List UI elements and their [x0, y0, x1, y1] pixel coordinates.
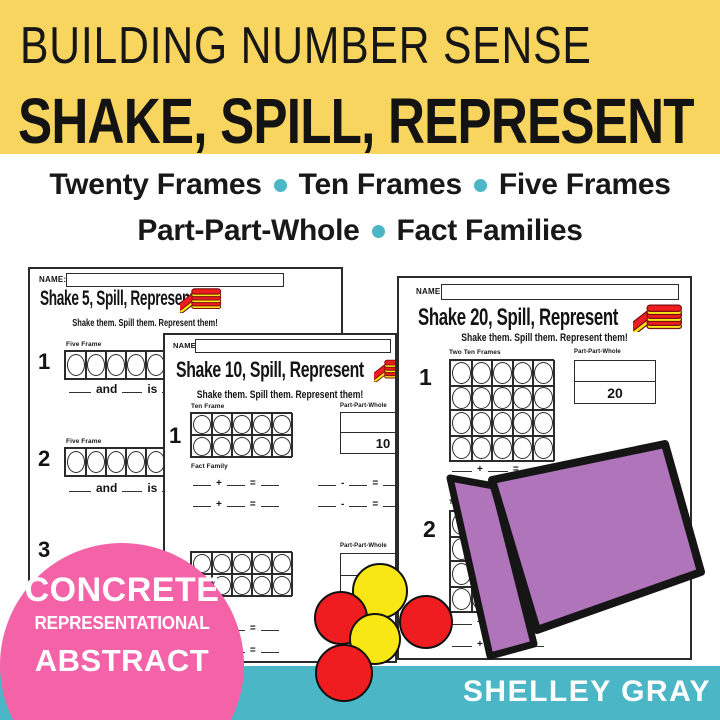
frame-label: Ten Frame [191, 403, 224, 410]
bullet-dot-icon [274, 179, 287, 192]
question-number: 1 [169, 423, 181, 449]
badge-abstract: ABSTRACT [0, 643, 244, 679]
frame-label: Two Ten Frames [449, 349, 501, 356]
fact-family-row: -= [315, 476, 397, 489]
question-number: 1 [419, 364, 432, 391]
ppw-label: Part-Part-Whole [340, 543, 387, 549]
ppw-label: Part-Part-Whole [574, 349, 621, 355]
ten-frame [190, 412, 292, 458]
fact-family-row: += [190, 476, 282, 489]
ppw-parts-cell [341, 413, 397, 433]
topics-row-2: Part-Part-WholeFact Families [0, 214, 720, 248]
part-part-whole-box: 10 [340, 412, 397, 454]
counters-stack-icon [180, 283, 222, 313]
worksheet-title: Shake 10, Spill, Represent [176, 357, 364, 383]
ppw-whole-value: 10 [341, 433, 397, 453]
topic-twenty-frames: Twenty Frames [49, 168, 261, 201]
frame-label: Five Frame [66, 341, 101, 348]
purple-spill-cup [425, 420, 720, 670]
fact-family-label: Fact Family [191, 463, 228, 470]
product-cover: BUILDING NUMBER SENSE SHAKE, SPILL, REPR… [0, 0, 720, 720]
topic-five-frames: Five Frames [499, 168, 671, 201]
fact-family-row: += [190, 497, 282, 510]
topic-part-part-whole: Part-Part-Whole [137, 214, 359, 247]
badge-representational: REPRESENTATIONAL [6, 613, 238, 634]
worksheet-tagline: Shake them. Spill them. Represent them! [431, 332, 658, 344]
ten-frame [449, 359, 554, 412]
ppw-label: Part-Part-Whole [340, 403, 387, 409]
name-input-line [66, 273, 284, 287]
red-counter [315, 644, 373, 702]
ppw-parts-cell [575, 361, 655, 382]
name-input-line [195, 339, 391, 353]
bullet-dot-icon [372, 225, 385, 238]
part-part-whole-box: 20 [574, 360, 656, 404]
worksheet-title: Shake 5, Spill, Represent [40, 287, 194, 311]
banner-series-title: BUILDING NUMBER SENSE [20, 16, 592, 76]
counters-stack-icon [633, 300, 683, 332]
bullet-dot-icon [474, 179, 487, 192]
ppw-whole-value: 20 [575, 382, 655, 403]
name-input-line [441, 284, 679, 300]
topic-ten-frames: Ten Frames [299, 168, 462, 201]
topics-row-1: Twenty FramesTen FramesFive Frames [0, 168, 720, 202]
name-label: NAME: [416, 287, 443, 296]
author-name: SHELLEY GRAY [463, 666, 711, 718]
banner-main-title: SHAKE, SPILL, REPRESENT [18, 84, 694, 158]
red-counter [399, 595, 453, 649]
fact-family-row: -= [315, 497, 397, 510]
worksheet-tagline: Shake them. Spill them. Represent them! [28, 318, 265, 329]
question-number: 1 [38, 349, 50, 375]
badge-concrete: CONCRETE [0, 571, 244, 610]
five-frame [64, 350, 166, 380]
worksheet-title: Shake 20, Spill, Represent [418, 304, 618, 332]
counters-stack-icon [374, 355, 397, 382]
worksheet-tagline: Shake them. Spill them. Represent them! [190, 389, 369, 401]
frame-label: Five Frame [66, 438, 101, 445]
question-number: 3 [38, 537, 50, 563]
name-label: NAME: [39, 275, 66, 284]
topics-strip: Twenty FramesTen FramesFive Frames Part-… [0, 154, 720, 258]
five-frame [64, 447, 166, 477]
banner: BUILDING NUMBER SENSE SHAKE, SPILL, REPR… [0, 0, 720, 154]
question-number: 2 [38, 446, 50, 472]
topic-fact-families: Fact Families [397, 214, 583, 247]
